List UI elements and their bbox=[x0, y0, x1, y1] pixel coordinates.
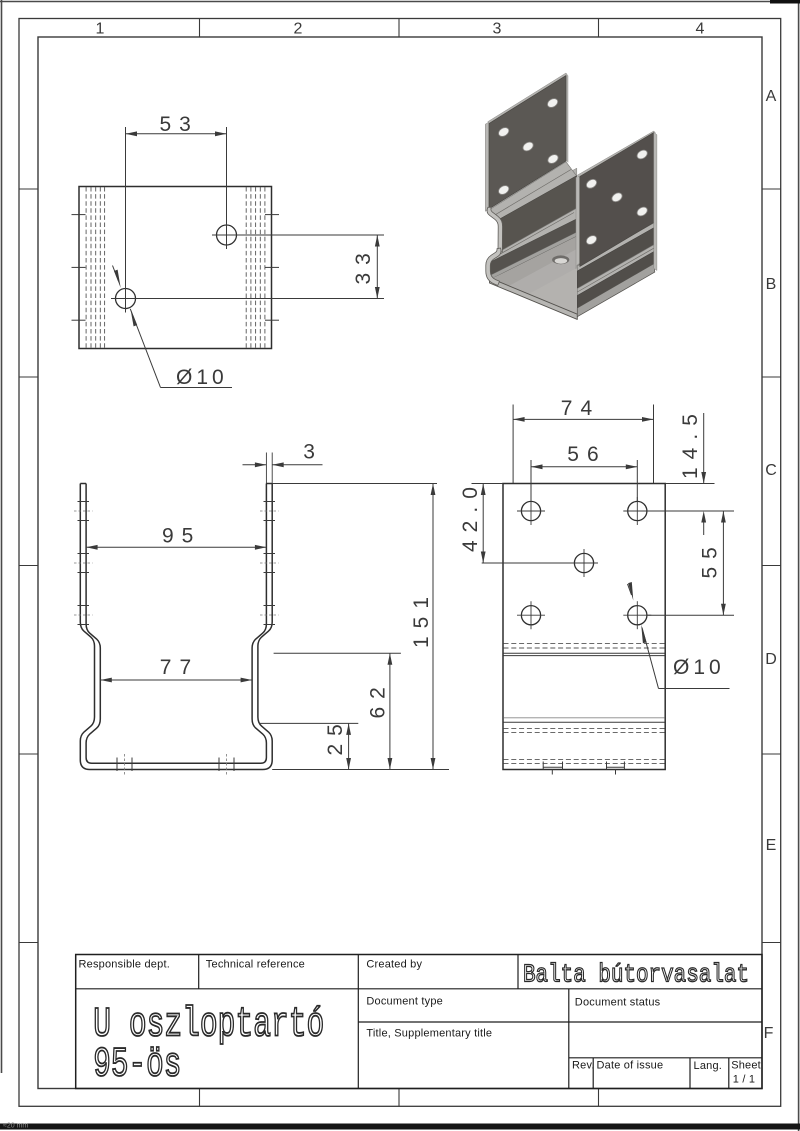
svg-text:Ø10: Ø10 bbox=[176, 366, 228, 389]
svg-text:25: 25 bbox=[324, 716, 347, 755]
svg-text:Created by: Created by bbox=[366, 959, 422, 971]
svg-text:Lang.: Lang. bbox=[694, 1060, 723, 1072]
svg-text:Document status: Document status bbox=[575, 997, 661, 1009]
svg-text:56: 56 bbox=[567, 443, 606, 466]
svg-text:3: 3 bbox=[303, 441, 323, 464]
svg-text:Date of issue: Date of issue bbox=[597, 1060, 664, 1072]
svg-text:62: 62 bbox=[367, 679, 390, 718]
svg-text:1: 1 bbox=[96, 21, 105, 38]
svg-text:1 / 1: 1 / 1 bbox=[733, 1074, 755, 1086]
svg-text:95-ös: 95-ös bbox=[93, 1041, 181, 1088]
svg-text:Responsible dept.: Responsible dept. bbox=[79, 959, 170, 971]
svg-text:Document type: Document type bbox=[366, 996, 443, 1008]
svg-text:F: F bbox=[764, 1025, 774, 1042]
svg-text:D: D bbox=[765, 651, 777, 668]
svg-text:77: 77 bbox=[160, 656, 199, 679]
svg-text:Ø10: Ø10 bbox=[673, 656, 725, 679]
svg-text:A: A bbox=[766, 88, 777, 105]
svg-text:Balta bútorvasalat: Balta bútorvasalat bbox=[523, 961, 749, 991]
svg-text:≈20 mm: ≈20 mm bbox=[3, 1123, 28, 1130]
svg-text:95: 95 bbox=[162, 525, 201, 548]
svg-text:14.5: 14.5 bbox=[679, 406, 702, 479]
svg-text:E: E bbox=[766, 837, 777, 854]
svg-text:74: 74 bbox=[561, 397, 600, 420]
svg-text:4: 4 bbox=[696, 21, 705, 38]
svg-text:2: 2 bbox=[294, 21, 303, 38]
svg-text:Technical reference: Technical reference bbox=[206, 959, 305, 971]
svg-text:3: 3 bbox=[493, 21, 502, 38]
svg-text:53: 53 bbox=[160, 113, 199, 136]
svg-text:C: C bbox=[765, 462, 777, 479]
svg-text:151: 151 bbox=[410, 589, 433, 648]
svg-text:Title, Supplementary title: Title, Supplementary title bbox=[366, 1028, 492, 1040]
svg-text:B: B bbox=[766, 276, 777, 293]
svg-text:Sheet: Sheet bbox=[731, 1060, 761, 1072]
svg-text:42.0: 42.0 bbox=[459, 479, 482, 552]
svg-text:33: 33 bbox=[352, 245, 375, 284]
svg-text:55: 55 bbox=[699, 539, 722, 578]
svg-text:Rev.: Rev. bbox=[572, 1060, 595, 1072]
